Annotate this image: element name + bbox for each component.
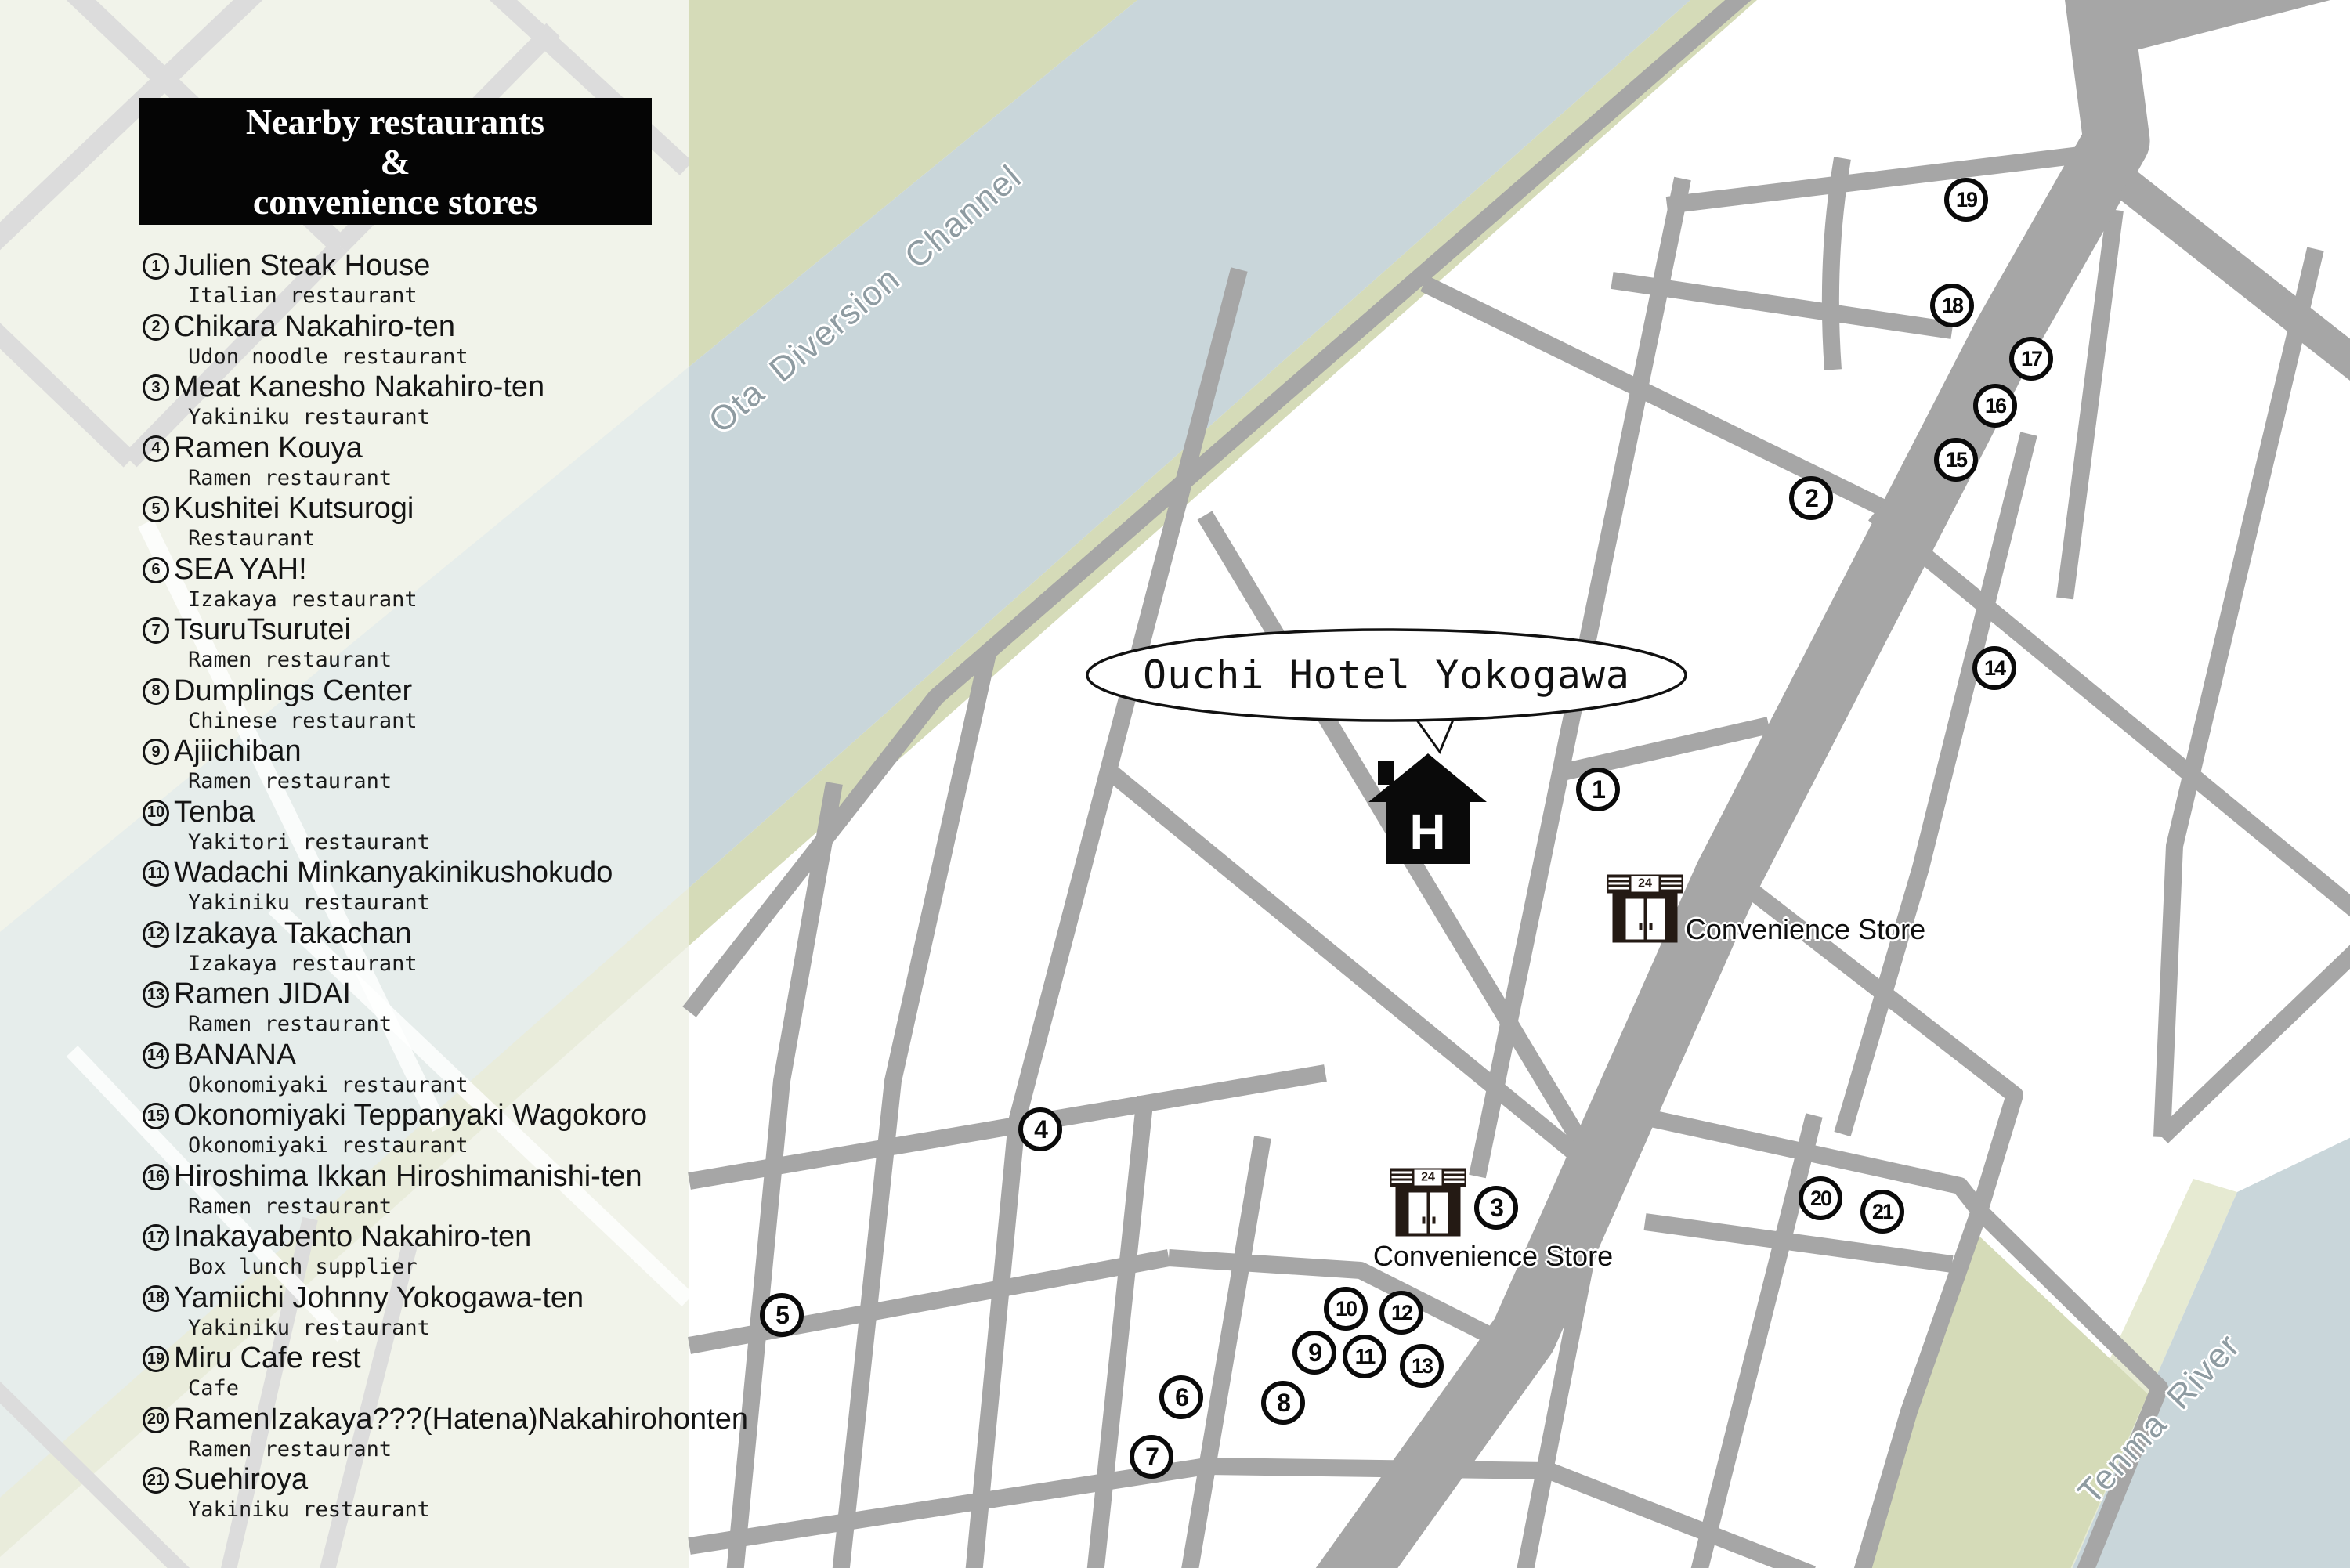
legend-item-name: Ramen JIDAI: [174, 977, 351, 1011]
store-stripe: [1392, 1181, 1412, 1183]
legend-item-7: 7TsuruTsuruteiRamen restaurant: [143, 613, 926, 674]
legend-title-line2: &: [139, 142, 652, 182]
legend-item-name: Inakayabento Nakahiro-ten: [174, 1220, 531, 1254]
legend-item-type: Italian restaurant: [188, 284, 418, 308]
legend-item-type: Cafe: [188, 1376, 239, 1400]
convenience-store-icon: 24: [1390, 1169, 1466, 1237]
map-marker-13: 13: [1400, 1344, 1444, 1388]
legend-item-name: Yamiichi Johnny Yokogawa-ten: [174, 1281, 584, 1315]
legend-item-number: 13: [143, 981, 169, 1008]
legend-title: Nearby restaurants & convenience stores: [139, 98, 652, 225]
legend-item-type: Yakiniku restaurant: [188, 1316, 430, 1340]
map-marker-5: 5: [760, 1293, 804, 1337]
legend-item-name: Ramen Kouya: [174, 432, 363, 465]
legend-item-20: 20RamenIzakaya???(Hatena)NakahirohontenR…: [143, 1403, 926, 1464]
store-door-handle: [1423, 1217, 1426, 1224]
store-24-badge: 24: [1632, 876, 1659, 892]
hotel-h-letter: H: [1409, 807, 1445, 857]
legend-item-8: 8Dumplings CenterChinese restaurant: [143, 674, 926, 735]
legend-item-type: Ramen restaurant: [188, 648, 392, 672]
legend-item-19: 19Miru Cafe restCafe: [143, 1342, 926, 1403]
store-stripe: [1392, 1172, 1412, 1174]
legend-item-10: 10TenbaYakitori restaurant: [143, 796, 926, 857]
legend-item-number: 8: [143, 678, 169, 705]
store-stripe: [1661, 887, 1682, 890]
legend-item-type: Izakaya restaurant: [188, 587, 418, 612]
legend-item-number: 4: [143, 435, 169, 462]
legend-title-line3: convenience stores: [139, 182, 652, 222]
legend-item-name: Chikara Nakahiro-ten: [174, 310, 455, 344]
legend-item-name: RamenIzakaya???(Hatena)Nakahirohonten: [174, 1403, 748, 1436]
map-marker-9: 9: [1292, 1331, 1336, 1375]
map-marker-16: 16: [1973, 384, 2017, 428]
legend-item-number: 18: [143, 1285, 169, 1312]
legend-item-number: 12: [143, 921, 169, 948]
store-stripe: [1661, 878, 1682, 880]
store-door-handle: [1433, 1217, 1436, 1224]
legend-item-number: 7: [143, 617, 169, 644]
map-marker-15: 15: [1934, 438, 1978, 482]
convenience-store-icon: 24: [1607, 875, 1683, 943]
legend-item-name: Tenba: [174, 796, 255, 829]
legend-item-name: Wadachi Minkanyakinikushokudo: [174, 856, 613, 890]
legend-item-1: 1Julien Steak HouseItalian restaurant: [143, 249, 926, 310]
legend-item-type: Ramen restaurant: [188, 1437, 392, 1461]
legend-item-type: Chinese restaurant: [188, 709, 418, 733]
map-marker-10: 10: [1324, 1287, 1368, 1331]
legend-item-5: 5Kushitei KutsurogiRestaurant: [143, 492, 926, 553]
legend-item-name: Suehiroya: [174, 1463, 308, 1497]
hotel-body: H: [1386, 799, 1470, 864]
legend-item-21: 21SuehiroyaYakiniku restaurant: [143, 1463, 926, 1524]
legend-item-3: 3Meat Kanesho Nakahiro-tenYakiniku resta…: [143, 370, 926, 432]
map-marker-3: 3: [1474, 1186, 1518, 1230]
legend-item-type: Okonomiyaki restaurant: [188, 1073, 468, 1097]
legend-item-4: 4Ramen KouyaRamen restaurant: [143, 432, 926, 493]
map-marker-7: 7: [1130, 1435, 1173, 1479]
legend-item-number: 9: [143, 739, 169, 765]
legend-item-name: BANANA: [174, 1039, 296, 1072]
hotel-icon: H: [1368, 753, 1487, 864]
store-body: [1613, 894, 1678, 943]
legend-item-type: Yakiniku restaurant: [188, 1498, 430, 1522]
legend-item-name: Izakaya Takachan: [174, 917, 412, 951]
legend-item-number: 1: [143, 253, 169, 280]
map-marker-2: 2: [1789, 476, 1833, 520]
hotel-chimney: [1378, 761, 1394, 785]
legend-item-name: Julien Steak House: [174, 249, 430, 283]
legend-item-name: Miru Cafe rest: [174, 1342, 361, 1375]
legend-item-type: Ramen restaurant: [188, 1194, 392, 1219]
legend-item-name: Kushitei Kutsurogi: [174, 492, 414, 526]
store-stripe: [1444, 1172, 1465, 1174]
legend-item-type: Yakiniku restaurant: [188, 405, 430, 429]
legend-item-type: Ramen restaurant: [188, 769, 392, 793]
legend-item-name: SEA YAH!: [174, 553, 307, 587]
store-stripe: [1444, 1181, 1465, 1183]
legend-item-number: 19: [143, 1346, 169, 1372]
store-stripe: [1609, 878, 1629, 880]
legend-item-type: Okonomiyaki restaurant: [188, 1133, 468, 1158]
legend-item-name: TsuruTsurutei: [174, 613, 351, 647]
legend-item-name: Meat Kanesho Nakahiro-ten: [174, 370, 544, 404]
legend-item-12: 12Izakaya TakachanIzakaya restaurant: [143, 917, 926, 978]
legend-item-type: Restaurant: [188, 526, 316, 551]
convenience-store-label: Convenience Store: [1373, 1240, 1613, 1273]
store-door-handle: [1650, 923, 1653, 930]
map-marker-8: 8: [1261, 1381, 1305, 1425]
map-marker-14: 14: [1972, 646, 2016, 690]
legend-item-number: 6: [143, 557, 169, 583]
legend-item-number: 15: [143, 1103, 169, 1129]
store-door-handle: [1640, 923, 1643, 930]
legend-item-14: 14BANANAOkonomiyaki restaurant: [143, 1039, 926, 1100]
legend-item-number: 14: [143, 1042, 169, 1069]
legend-item-type: Ramen restaurant: [188, 466, 392, 490]
legend-item-number: 16: [143, 1164, 169, 1190]
legend-item-number: 17: [143, 1224, 169, 1251]
store-stripe: [1444, 1176, 1465, 1179]
legend-item-15: 15Okonomiyaki Teppanyaki WagokoroOkonomi…: [143, 1099, 926, 1160]
legend-item-16: 16Hiroshima Ikkan Hiroshimanishi-tenRame…: [143, 1160, 926, 1221]
legend-item-number: 10: [143, 800, 169, 826]
legend-item-type: Yakiniku restaurant: [188, 891, 430, 915]
store-door: [1626, 899, 1644, 940]
legend-item-name: Hiroshima Ikkan Hiroshimanishi-ten: [174, 1160, 642, 1194]
legend-item-17: 17Inakayabento Nakahiro-tenBox lunch sup…: [143, 1220, 926, 1281]
legend-item-number: 20: [143, 1407, 169, 1433]
store-stripe: [1609, 883, 1629, 885]
map-marker-11: 11: [1343, 1335, 1386, 1378]
map-page: Nearby restaurants & convenience stores …: [0, 0, 2350, 1568]
legend-item-18: 18Yamiichi Johnny Yokogawa-tenYakiniku r…: [143, 1281, 926, 1342]
store-door: [1409, 1193, 1427, 1234]
legend-item-number: 2: [143, 314, 169, 341]
store-24-badge: 24: [1415, 1170, 1442, 1186]
store-body: [1396, 1187, 1461, 1237]
legend-title-line1: Nearby restaurants: [139, 102, 652, 142]
map-marker-19: 19: [1944, 178, 1988, 222]
store-stripe: [1661, 883, 1682, 885]
legend-item-6: 6SEA YAH!Izakaya restaurant: [143, 553, 926, 614]
legend-item-number: 5: [143, 496, 169, 522]
legend-item-type: Yakitori restaurant: [188, 830, 430, 854]
legend-item-type: Ramen restaurant: [188, 1012, 392, 1036]
legend-item-name: Ajiichiban: [174, 735, 302, 768]
legend-item-11: 11Wadachi MinkanyakinikushokudoYakiniku …: [143, 856, 926, 917]
map-marker-12: 12: [1379, 1291, 1423, 1335]
legend-item-type: Box lunch supplier: [188, 1255, 418, 1279]
legend-item-number: 21: [143, 1467, 169, 1494]
legend-item-name: Dumplings Center: [174, 674, 412, 708]
store-door: [1430, 1193, 1448, 1234]
legend-item-type: Izakaya restaurant: [188, 952, 418, 976]
map-marker-4: 4: [1018, 1107, 1062, 1151]
store-stripe: [1392, 1176, 1412, 1179]
map-marker-1: 1: [1576, 768, 1620, 811]
map-marker-20: 20: [1799, 1176, 1842, 1220]
legend-item-13: 13Ramen JIDAIRamen restaurant: [143, 977, 926, 1039]
legend-item-number: 11: [143, 860, 169, 887]
legend-item-9: 9AjiichibanRamen restaurant: [143, 735, 926, 796]
legend-item-name: Okonomiyaki Teppanyaki Wagokoro: [174, 1099, 647, 1133]
map-marker-21: 21: [1860, 1190, 1904, 1234]
store-door: [1647, 899, 1665, 940]
map-marker-17: 17: [2009, 337, 2053, 381]
map-marker-18: 18: [1930, 284, 1974, 327]
map-marker-6: 6: [1159, 1375, 1203, 1419]
convenience-store-label: Convenience Store: [1686, 913, 1925, 946]
legend-item-type: Udon noodle restaurant: [188, 345, 468, 369]
hotel-bubble-label: Ouchi Hotel Yokogawa: [1143, 652, 1630, 698]
store-stripe: [1609, 887, 1629, 890]
legend-item-number: 3: [143, 374, 169, 401]
